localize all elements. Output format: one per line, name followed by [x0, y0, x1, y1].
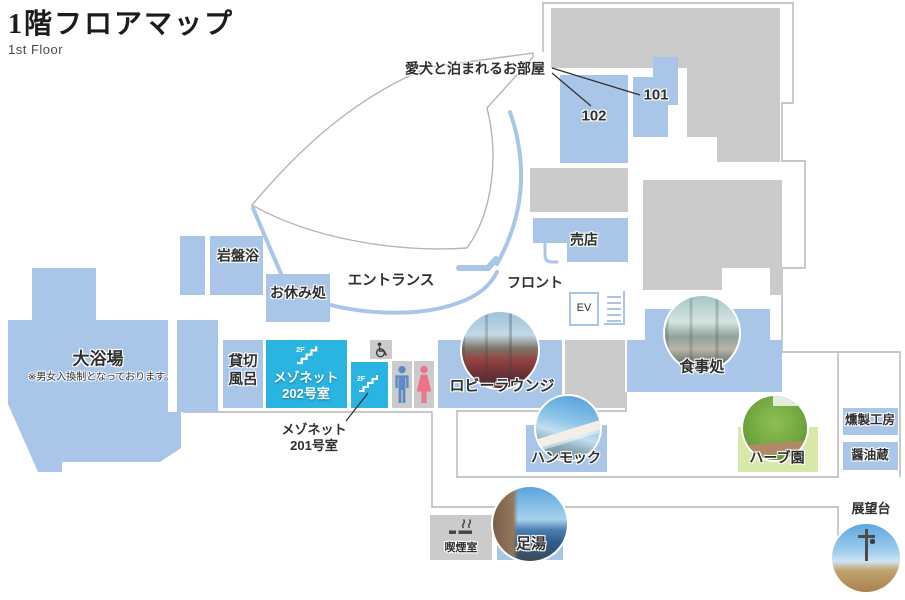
front-desk-label: フロント — [507, 274, 563, 292]
room-102-label: 102 — [581, 108, 606, 127]
stairs-2f-label-202: 2F — [296, 345, 305, 354]
maisonette-202-line2: 202号室 — [273, 386, 338, 402]
large-bath-area — [8, 320, 181, 472]
service-block-center — [643, 180, 782, 295]
rest-area-label: お休み処 — [270, 284, 326, 302]
stairs-2f-label-201: 2F — [357, 376, 366, 383]
entrance-canopy-outline — [252, 53, 533, 249]
stone-sauna-area-a — [180, 236, 205, 295]
maisonette-201-line2: 201号室 — [281, 438, 346, 454]
observatory-bar-shape — [858, 535, 875, 538]
large-bath-slab — [177, 320, 218, 412]
foot-bath-label: 足湯 — [516, 536, 546, 555]
smokehouse-label: 燻製工房 — [845, 413, 895, 429]
shop-label: 売店 — [570, 231, 598, 249]
floor-map-canvas: 2F 2F — [0, 0, 905, 600]
observatory-label: 展望台 — [851, 501, 890, 517]
room-101-label: 101 — [643, 87, 668, 106]
lobby-lounge-label: ロビーラウンジ — [449, 378, 554, 397]
maisonette-201-annotation: メゾネット 201号室 — [281, 422, 346, 455]
maisonette-202-line1: メゾネット — [273, 370, 338, 386]
private-bath-line2: 風呂 — [229, 371, 258, 389]
lobby-lounge-photo — [462, 312, 538, 388]
large-bath-note: ※男女入換制となっております。 — [28, 372, 174, 385]
elevator-label: EV — [577, 302, 592, 316]
page-title: 1階フロアマップ — [8, 2, 234, 42]
entrance-label: エントランス — [348, 272, 435, 290]
stone-sauna-label: 岩盤浴 — [217, 247, 259, 265]
observatory-lamp-shape — [870, 539, 875, 544]
hammock-shape — [536, 419, 600, 450]
dog-rooms-annotation: 愛犬と泊まれるお部屋 — [405, 60, 545, 78]
maisonette-201-line1: メゾネット — [281, 422, 346, 438]
stone-sauna-area-b — [210, 236, 263, 295]
private-bath-line1: 貸切 — [229, 353, 258, 371]
herb-sky-shape — [773, 396, 807, 406]
page-subtitle: 1st Floor — [8, 42, 63, 57]
large-bath-label: 大浴場 — [73, 348, 124, 369]
dining-label: 食事処 — [679, 359, 724, 378]
large-bath-arm — [32, 268, 96, 320]
stairs-icon — [604, 291, 624, 324]
hammock-label: ハンモック — [531, 449, 601, 467]
observatory-photo — [832, 524, 900, 592]
maisonette-202-label: メゾネット 202号室 — [273, 370, 338, 403]
floor-map-page: 2F 2F 1階フロアマップ 1st Floor 愛犬と泊まれるお部屋 102 … — [0, 0, 905, 600]
private-bath-label: 貸切 風呂 — [229, 353, 258, 389]
service-block-shop-back — [530, 168, 628, 212]
service-block-right — [687, 8, 780, 162]
maisonette-201-stairs-area — [351, 362, 388, 408]
smoking-room-label: 喫煙室 — [445, 542, 478, 556]
herb-garden-label: ハーブ園 — [749, 449, 804, 467]
soy-sauce-cellar-label: 醤油蔵 — [851, 448, 889, 464]
observatory-pole-shape — [865, 529, 868, 561]
